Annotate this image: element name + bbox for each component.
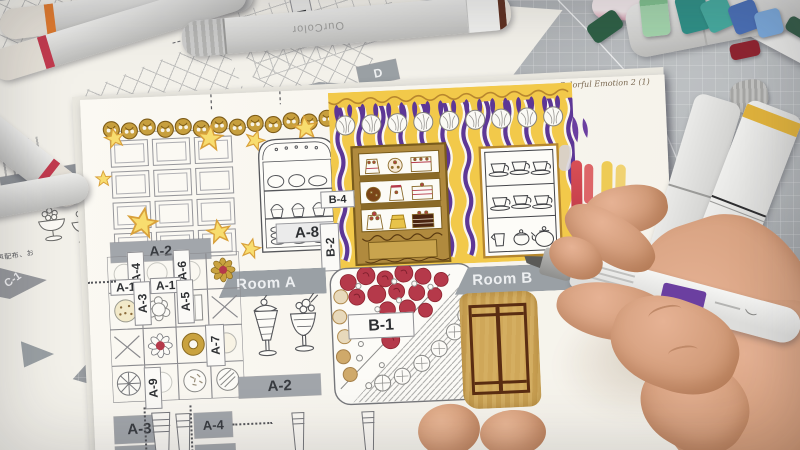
dotted-line <box>232 422 272 426</box>
purple-test-swatch <box>567 111 598 146</box>
door-divider <box>496 307 503 391</box>
craft-photo: D-1 D C-5 ズ再配布、お ©日本ドールハ C-1 Colorful <box>0 0 800 450</box>
gray-test-swatch <box>559 145 572 171</box>
part-label-a2-bottom: A-2 <box>238 374 321 399</box>
door-frame <box>468 303 530 395</box>
part-label-a4-bottom: A-4 <box>194 412 233 439</box>
held-marker-text-line <box>715 301 741 309</box>
marker-seam <box>668 184 714 200</box>
table-leg-art <box>284 407 397 450</box>
teacup-shelf-art <box>478 143 563 258</box>
cake-shelf-art <box>350 142 451 266</box>
marker-cap <box>465 0 501 33</box>
wooden-door <box>459 290 542 409</box>
part-label-a3: A-3 <box>133 281 152 326</box>
part-label-a9: A-9 <box>144 367 163 410</box>
marker-chisel-cap <box>180 18 227 58</box>
parfait-glasses-art <box>244 292 331 376</box>
gray-wedge <box>19 341 55 369</box>
part-label-a6-bottom: A-6 <box>195 444 236 450</box>
marker-brand-text: OurColor <box>291 19 344 36</box>
part-label-b1: B-1 <box>348 312 415 340</box>
part-label-b4: B-4 <box>320 190 355 208</box>
held-marker-glyph: ) <box>744 309 759 319</box>
marker-cap-mint <box>639 0 671 37</box>
part-label-b2: B-2 <box>320 223 341 272</box>
part-label-a5: A-5 <box>176 279 195 324</box>
part-label-a7: A-7 <box>205 324 226 367</box>
